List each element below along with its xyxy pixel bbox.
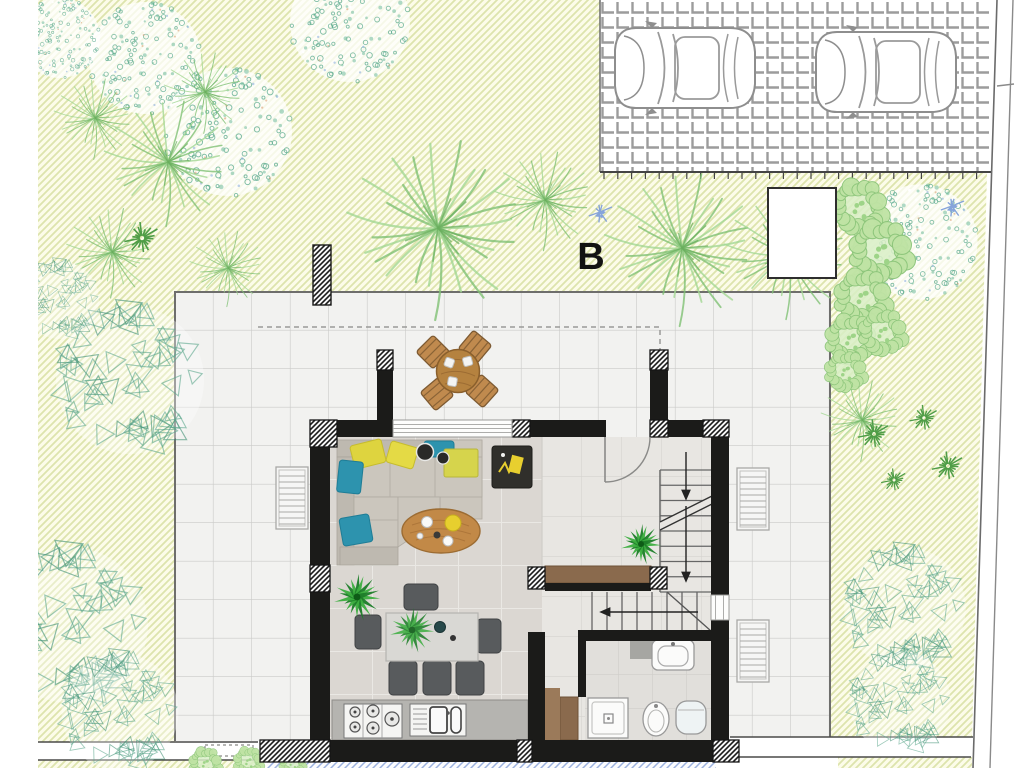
parking-area	[600, 0, 991, 179]
floor-plan: B	[0, 0, 1024, 768]
porch-pier	[377, 370, 393, 437]
bathroom-sink	[652, 640, 694, 670]
garden-bottom-right	[838, 757, 972, 768]
dining-table	[386, 613, 478, 661]
bowl	[417, 444, 434, 461]
exterior-grille	[737, 620, 769, 682]
yellow-plate	[445, 515, 461, 531]
garden-pillar	[313, 245, 331, 305]
bowl	[435, 622, 446, 633]
gas-hob	[344, 704, 402, 738]
kitchen-sink	[410, 704, 466, 736]
tree-canopy	[164, 67, 292, 197]
exterior-grille	[276, 467, 308, 529]
bathroom-door	[560, 697, 578, 740]
exterior-grille	[737, 468, 769, 530]
porch-pier	[650, 370, 668, 420]
building-label: B	[577, 236, 604, 278]
pillow-teal	[339, 514, 373, 547]
left-margin	[0, 0, 38, 768]
shed	[768, 188, 836, 278]
dining-chair	[389, 661, 417, 695]
dining-chair	[423, 661, 451, 695]
car-top-view	[816, 25, 956, 119]
bowl	[437, 452, 449, 464]
side-window	[711, 595, 729, 620]
side-table	[492, 446, 532, 488]
dining-chair	[477, 619, 501, 653]
sofa-tray	[444, 449, 478, 477]
shower	[588, 698, 628, 738]
toilet	[676, 701, 706, 734]
coffee-table	[402, 509, 480, 553]
kitchen	[332, 700, 528, 740]
plate	[462, 356, 473, 367]
bidet	[643, 702, 669, 736]
dining-chair	[404, 584, 438, 610]
plate	[447, 376, 457, 386]
wood-console	[545, 566, 651, 583]
walkway-right	[730, 737, 973, 757]
dining-chair	[355, 615, 381, 649]
wood-threshold	[545, 688, 560, 740]
pillow-teal	[336, 460, 363, 494]
dining-chair	[456, 661, 484, 695]
car-top-view	[615, 21, 755, 115]
